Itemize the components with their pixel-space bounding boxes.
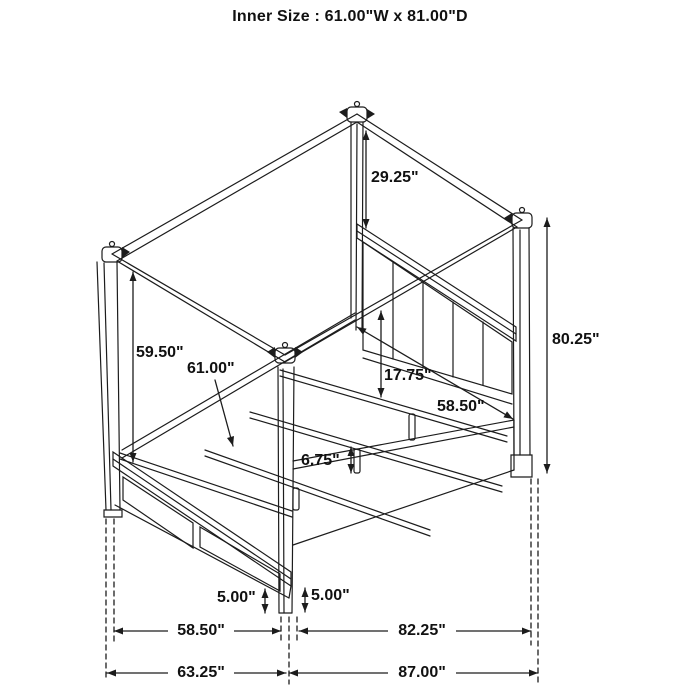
slat-bars [205, 370, 507, 536]
dim-overall-depth-label: 87.00" [388, 664, 456, 682]
extension-lines [106, 479, 538, 686]
left-post [97, 262, 122, 517]
left-post-foot [104, 510, 122, 517]
dim-post-height-label: 80.25" [552, 331, 600, 349]
canopy-frame [102, 102, 532, 364]
dim-footboard-inner-width-label: 58.50" [168, 622, 234, 640]
dim-canopy-clearance-label: 59.50" [136, 344, 184, 362]
dim-overall-width-label: 63.25" [168, 664, 234, 682]
footboard-storage [113, 452, 291, 598]
bed-posts [97, 122, 532, 613]
dim-slat-width-label: 61.00" [187, 360, 235, 378]
dim-siderail-length-label: 82.25" [388, 622, 456, 640]
dim-headboard-panel-label: 17.75" [384, 367, 432, 385]
dim-clearance-right-label: 5.00" [311, 587, 350, 605]
dim-clearance-left-label: 5.00" [217, 589, 256, 607]
bed-dimension-diagram: Inner Size : 61.00"W x 81.00"D [0, 0, 700, 700]
drawer-front-right [200, 527, 280, 591]
dim-canopy-to-headboard-label: 29.25" [371, 169, 419, 187]
bed-line-drawing [0, 0, 700, 700]
dim-leg-height-label: 6.75" [301, 452, 340, 470]
foot-deck-rail [120, 453, 292, 517]
dim-headboard-width-label: 58.50" [437, 398, 485, 416]
